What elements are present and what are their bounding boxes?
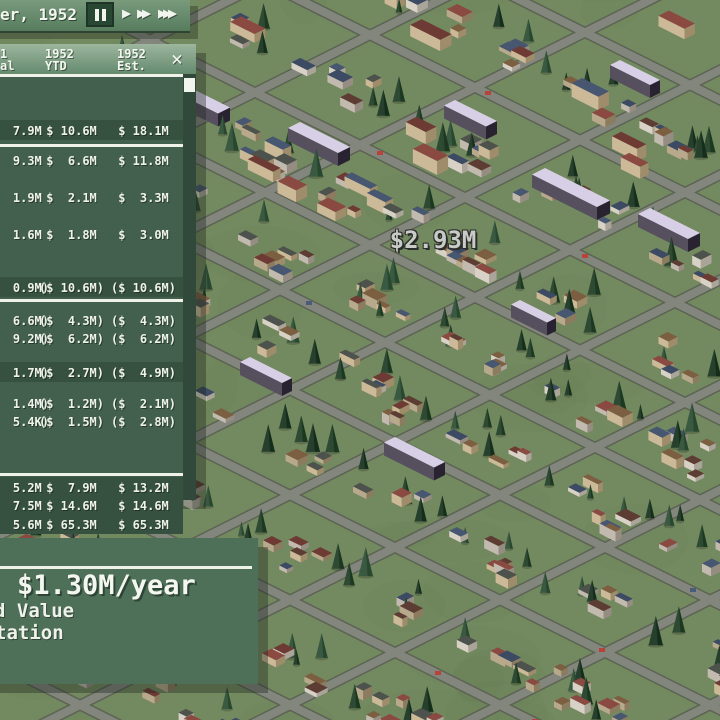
cell-est: $ 13.2M — [110, 481, 176, 495]
cell-est: $ 3.0M — [110, 228, 176, 242]
column-header-line: Est. — [117, 59, 146, 73]
cell-est: $ 65.3M — [110, 518, 176, 532]
cell-ytd: ($ 2.7M) — [38, 366, 104, 380]
table-row: 7.5M $ 14.6M $ 14.6M — [0, 499, 196, 515]
game-viewport: $2.93M er, 1952 ▶ ▶▶ ▶▶▶ 1al 1952YTD 195… — [0, 0, 720, 720]
cell-est: ($ 4.3M) — [110, 314, 176, 328]
cell-est: ($ 2.1M) — [110, 397, 176, 411]
rate-label: $1.30M/year — [17, 570, 196, 601]
cell-ytd: ($ 1.5M) — [38, 415, 104, 429]
cell-est: $ 3.3M — [110, 191, 176, 205]
table-row: 5.4K) ($ 1.5M) ($ 2.8M) — [0, 415, 196, 431]
cell-ytd: ($ 4.3M) — [38, 314, 104, 328]
cell-est: ($ 10.6M) — [110, 281, 176, 295]
divider — [0, 74, 183, 77]
budget-panel: 1al 1952YTD 1952Est. ✕ 7.9M $ 10.6M $ 18… — [0, 44, 196, 500]
column-header-line: al — [0, 59, 14, 73]
divider — [0, 473, 183, 476]
budget-header: 1al 1952YTD 1952Est. ✕ — [0, 44, 196, 74]
divider — [0, 566, 252, 569]
pause-icon — [95, 9, 99, 21]
cell-ytd: $ 7.9M — [38, 481, 104, 495]
cell-ytd: $ 10.6M — [38, 124, 104, 138]
table-row: 0.9M) ($ 10.6M) ($ 10.6M) — [0, 281, 196, 297]
table-row: 1.6M $ 1.8M $ 3.0M — [0, 228, 196, 244]
cell-ytd: ($ 1.2M) — [38, 397, 104, 411]
table-row: 9.3M $ 6.6M $ 11.8M — [0, 154, 196, 170]
fastest-forward-button[interactable]: ▶▶▶ — [158, 4, 173, 22]
pause-icon — [102, 9, 106, 21]
cell-ytd: $ 65.3M — [38, 518, 104, 532]
info-line-category: tation — [0, 622, 64, 644]
play-button[interactable]: ▶ — [122, 4, 127, 22]
table-row: 6.6M) ($ 4.3M) ($ 4.3M) — [0, 314, 196, 330]
info-panel: $1.30M/year d Value tation — [0, 538, 258, 684]
date-label: er, 1952 — [0, 5, 77, 24]
table-row: 7.9M $ 10.6M $ 18.1M — [0, 124, 196, 140]
cell-ytd: $ 1.8M — [38, 228, 104, 242]
divider — [0, 299, 183, 302]
scrollbar-track[interactable] — [183, 74, 196, 500]
cell-est: ($ 6.2M) — [110, 332, 176, 346]
column-header-ytd: 1952YTD — [45, 48, 74, 72]
column-header-est: 1952Est. — [117, 48, 146, 72]
pause-button[interactable] — [86, 2, 114, 27]
cell-ytd: $ 6.6M — [38, 154, 104, 168]
top-bar: er, 1952 ▶ ▶▶ ▶▶▶ — [0, 0, 190, 33]
table-row: 5.6M $ 65.3M $ 65.3M — [0, 518, 196, 534]
cell-est: ($ 4.9M) — [110, 366, 176, 380]
cell-ytd: ($ 6.2M) — [38, 332, 104, 346]
table-row: 9.2M) ($ 6.2M) ($ 6.2M) — [0, 332, 196, 348]
scrollbar-thumb[interactable] — [184, 78, 195, 92]
cell-ytd: $ 14.6M — [38, 499, 104, 513]
cell-est: $ 11.8M — [110, 154, 176, 168]
close-button[interactable]: ✕ — [166, 48, 188, 70]
column-header-actual: 1al — [0, 48, 14, 72]
column-header-line: YTD — [45, 59, 67, 73]
fast-forward-button[interactable]: ▶▶ — [137, 4, 147, 22]
divider — [0, 144, 183, 147]
cell-ytd: $ 2.1M — [38, 191, 104, 205]
building-value-label: $2.93M — [383, 226, 483, 254]
cell-ytd: ($ 10.6M) — [38, 281, 104, 295]
table-row: 1.9M $ 2.1M $ 3.3M — [0, 191, 196, 207]
table-row: 1.7M) ($ 2.7M) ($ 4.9M) — [0, 366, 196, 382]
cell-est: ($ 2.8M) — [110, 415, 176, 429]
cell-est: $ 18.1M — [110, 124, 176, 138]
table-row: 1.4M) ($ 1.2M) ($ 2.1M) — [0, 397, 196, 413]
cell-est: $ 14.6M — [110, 499, 176, 513]
info-line-value: d Value — [0, 600, 74, 622]
